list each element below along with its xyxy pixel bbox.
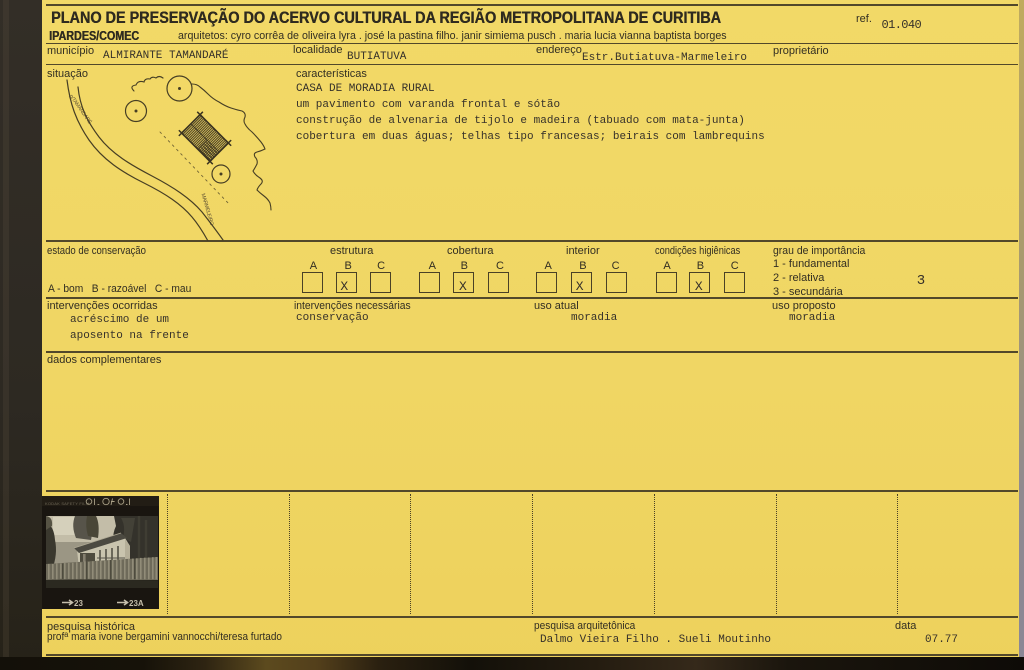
svg-text:MARMELEIRO: MARMELEIRO xyxy=(200,193,215,226)
svg-text:p/TAMANDARÉ: p/TAMANDARÉ xyxy=(68,93,94,126)
svg-text:23: 23 xyxy=(74,599,83,608)
svg-text:23A: 23A xyxy=(129,599,144,608)
svg-text:KODAK SAFETY FILM: KODAK SAFETY FILM xyxy=(45,501,89,506)
